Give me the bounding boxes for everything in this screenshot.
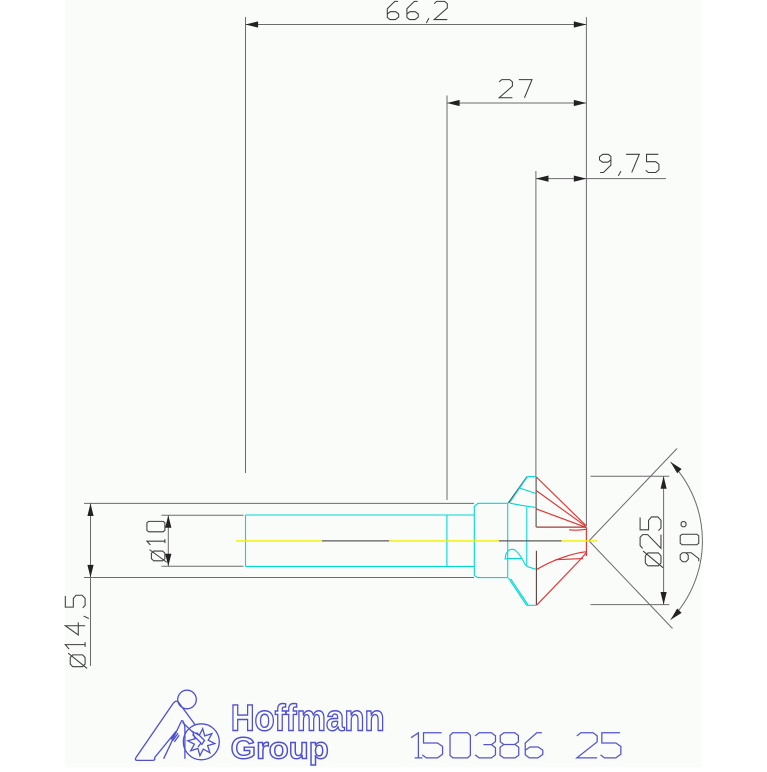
svg-text:Group: Group <box>231 730 329 765</box>
